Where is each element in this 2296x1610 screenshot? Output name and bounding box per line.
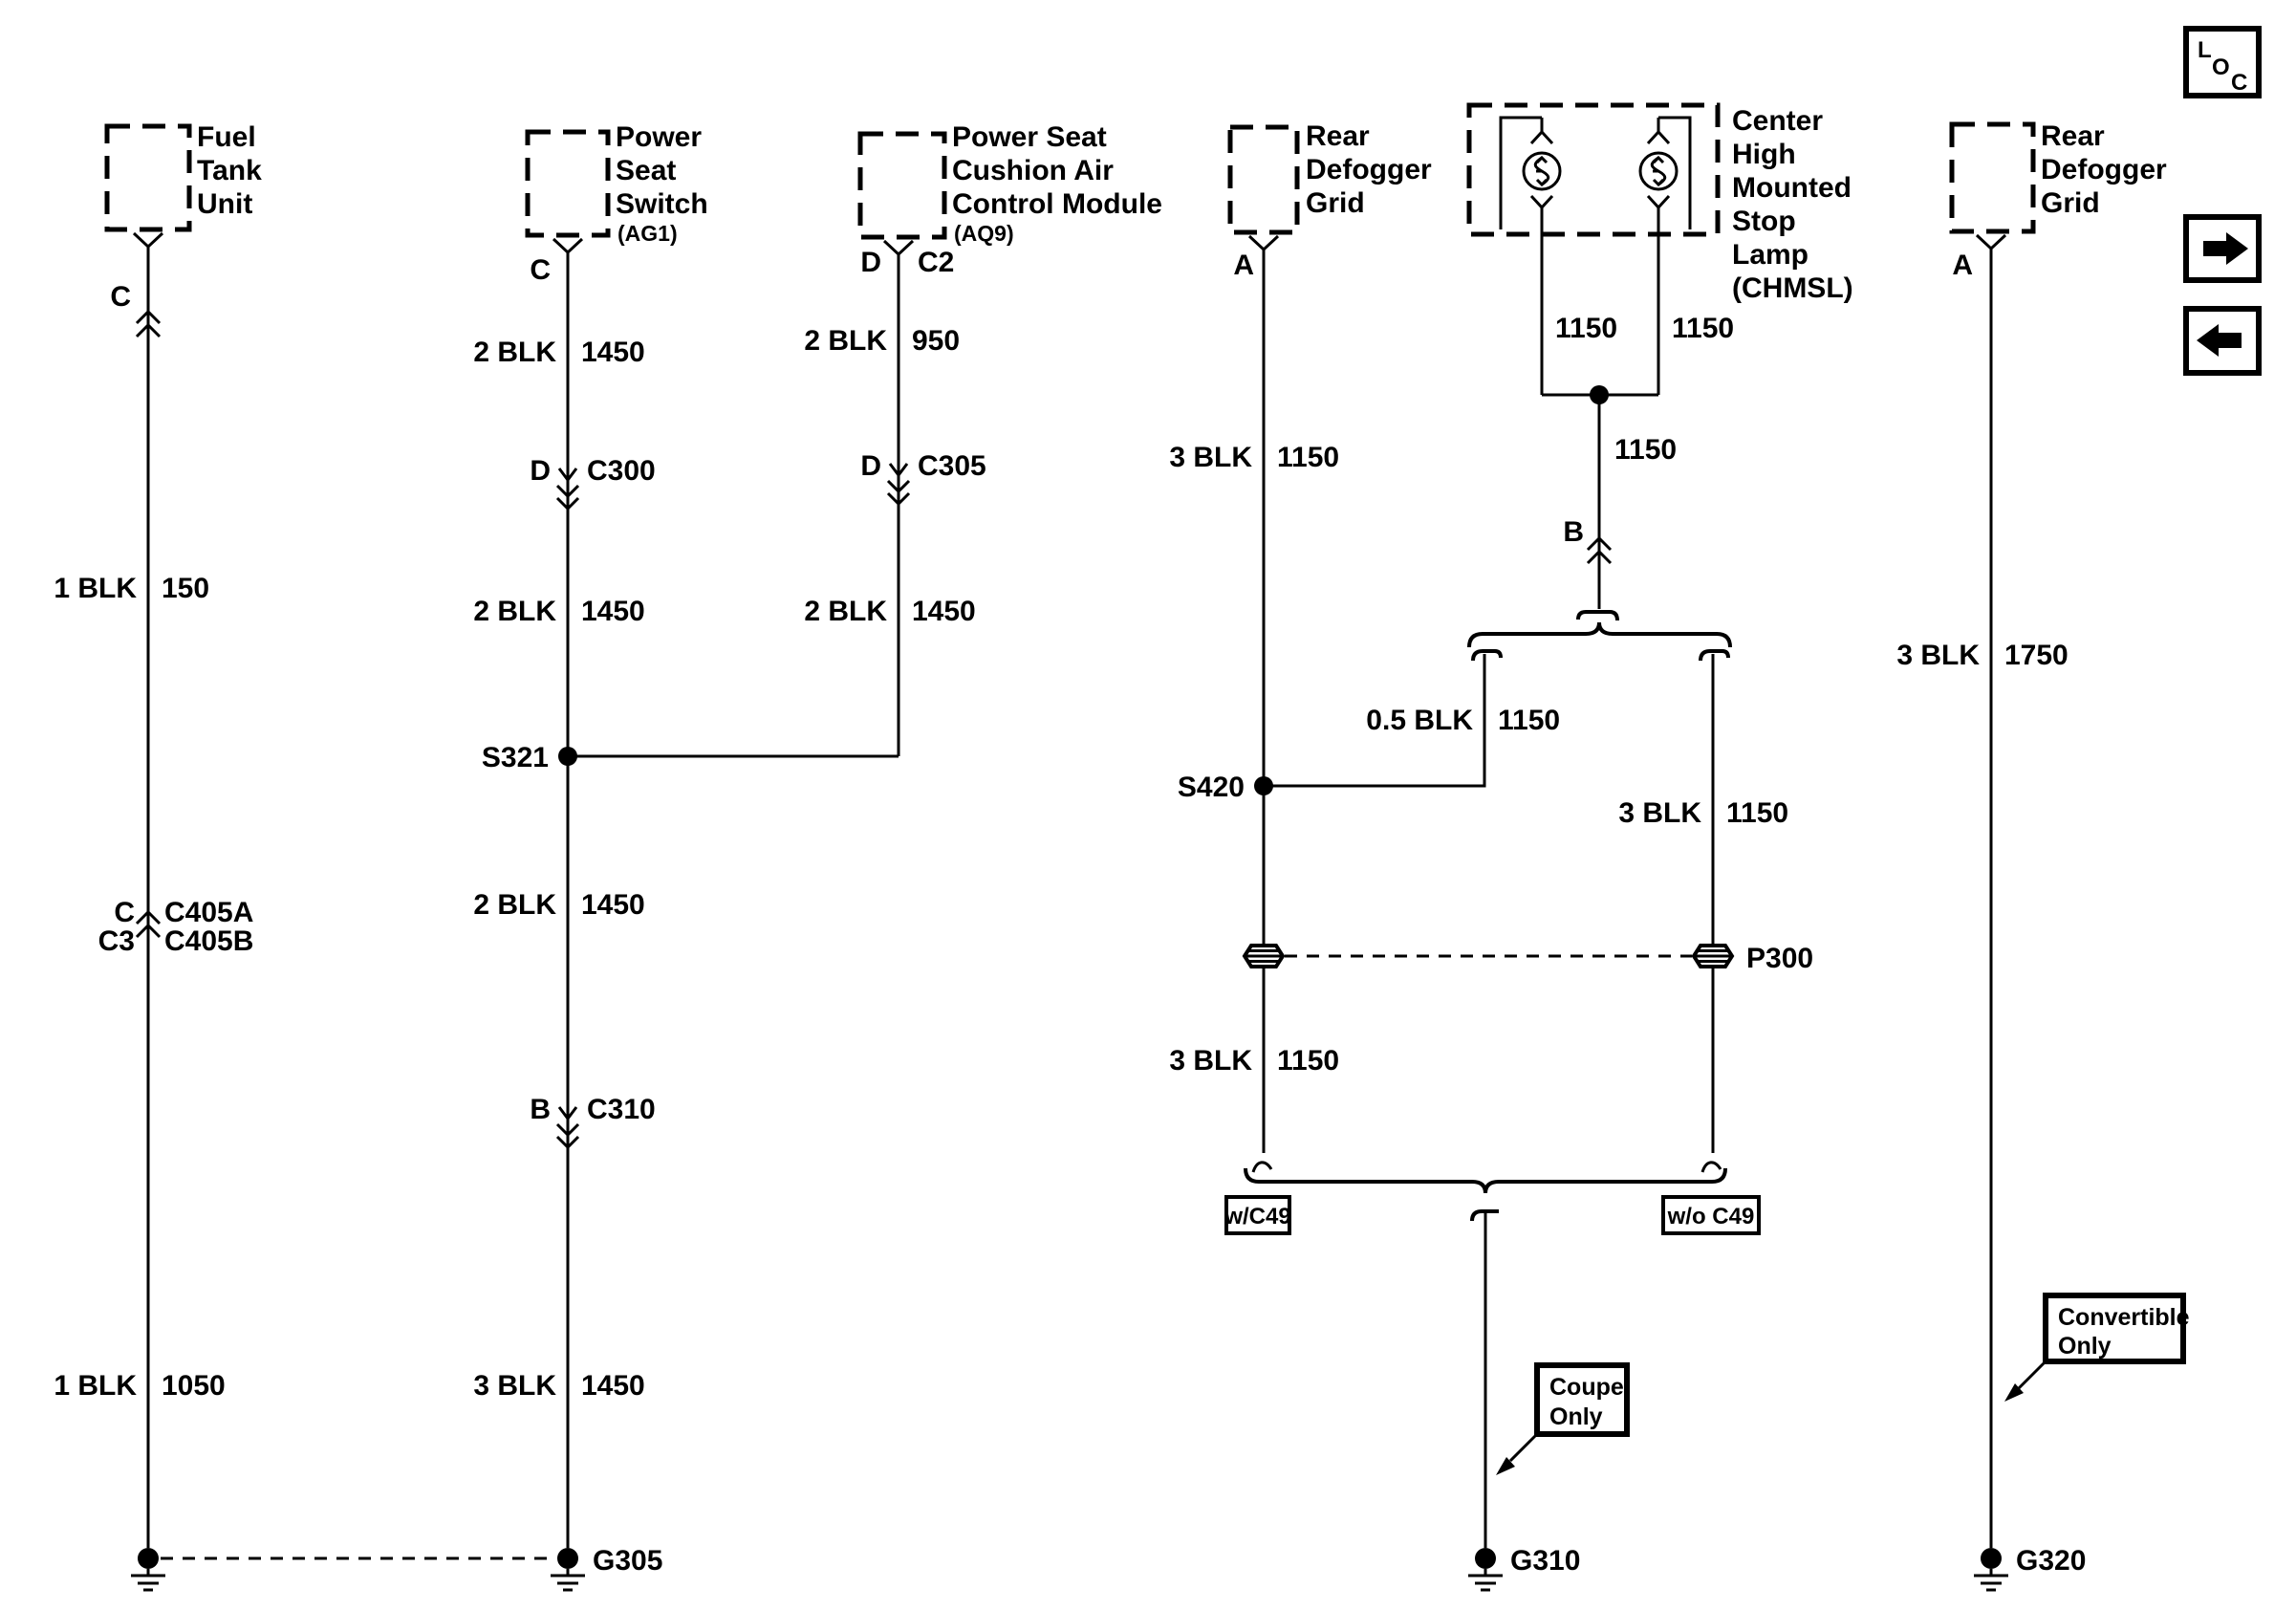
connector-id: C305 [918, 450, 986, 482]
connector-c405: C C405A C3 C405B [98, 897, 254, 957]
wire-gauge-label: 2 BLK [804, 596, 887, 627]
wire-end-curl [1702, 1163, 1721, 1172]
lamp-right-circuit-label: 1150 [1672, 313, 1734, 344]
chmsl-name-line3: Mounted [1732, 172, 1852, 204]
fuel-tank-name-line2: Tank [197, 155, 262, 186]
p300-label: P300 [1746, 943, 1813, 974]
wire-gauge-label: 3 BLK [1169, 442, 1252, 473]
cushion-module-conn-top: C2 [918, 247, 954, 278]
cushion-module-name-line1: Power Seat [952, 121, 1107, 153]
wire-circuit-label: 1450 [581, 596, 645, 627]
defogger-left-name-line2: Defogger [1306, 154, 1432, 185]
fuel-tank-unit-box [107, 126, 189, 229]
connector-id-top: C405A [164, 897, 253, 928]
cushion-module-name-line2: Cushion Air [952, 155, 1114, 186]
loc-button[interactable]: L O C [2186, 29, 2259, 96]
option-right-label: w/o C49 [1667, 1204, 1755, 1229]
wire-gauge-label: 1 BLK [54, 1370, 137, 1402]
wiring-diagram-page: Fuel Tank Unit C 1 BLK 150 C C405A C3 C4… [0, 0, 2296, 1610]
chmsl-left-bracket [1501, 118, 1542, 229]
connector-pin-top: C [114, 897, 135, 928]
connector-pin-bottom: C3 [98, 925, 135, 957]
wire-circuit-label: 1450 [912, 596, 976, 627]
chmsl-component: Center High Mounted Stop Lamp (CHMSL) [1469, 105, 1853, 395]
connector-id: C300 [587, 455, 656, 487]
chmsl-name-line1: Center [1732, 105, 1823, 137]
wire-circuit-label: 1150 [1277, 442, 1339, 473]
cushion-module-pin-label: D [860, 247, 881, 278]
rear-defogger-right-box [1952, 124, 2033, 231]
wire-circuit-label: 1450 [581, 1370, 645, 1402]
chmsl-name-line6: (CHMSL) [1732, 272, 1853, 304]
convertible-note-line2: Only [2058, 1333, 2112, 1360]
power-seat-switch-box [528, 132, 608, 235]
wire-gauge-label: 2 BLK [804, 325, 887, 357]
defogger-right-name-line2: Defogger [2041, 154, 2167, 185]
wire-circuit-label: 1150 [1277, 1045, 1339, 1077]
nav-forward-button[interactable] [2186, 217, 2259, 280]
defogger-right-pin-label: A [1952, 250, 1973, 281]
seat-switch-name-line2: Seat [616, 155, 676, 186]
seat-switch-wire: C 2 BLK 1450 D C300 2 BLK 1450 S321 2 BL… [473, 239, 899, 1590]
ground-symbol-icon [1974, 1548, 2008, 1590]
ground-symbol-icon [131, 1548, 165, 1590]
ground-label-g310: G310 [1510, 1545, 1580, 1577]
splice-s321: S321 [482, 742, 577, 773]
option-left-label: w/C49 [1224, 1204, 1290, 1229]
defogger-left-name-line3: Grid [1306, 187, 1365, 219]
option-label-wc49: w/C49 [1224, 1197, 1290, 1233]
fuel-tank-name-line3: Unit [197, 188, 252, 220]
seat-switch-name-line1: Power [616, 121, 702, 153]
lamp-left-circuit-label: 1150 [1555, 313, 1617, 344]
stop-lamp-left-icon [1524, 118, 1560, 395]
coupe-note-line1: Coupe [1549, 1374, 1624, 1401]
convertible-only-note: Convertible Only [2004, 1295, 2190, 1402]
defogger-right-name-line1: Rear [2041, 120, 2105, 152]
splice-s420: S420 [1178, 772, 1273, 803]
cushion-module-sub-label: (AQ9) [954, 221, 1014, 246]
wire-end-curl [1253, 1163, 1271, 1172]
defogger-left-name-line1: Rear [1306, 120, 1370, 152]
wire-circuit-label: 950 [912, 325, 960, 357]
ground-label-g305: G305 [593, 1545, 662, 1577]
wire-gauge-label: 2 BLK [473, 889, 556, 921]
defogger-right-wire: A 3 BLK 1750 Convertible Only G320 [1896, 235, 2189, 1590]
chmsl-name-line4: Stop [1732, 206, 1796, 237]
ground-symbol-icon [1468, 1548, 1503, 1590]
branch-left-bracket [1473, 651, 1501, 661]
wire-gauge-label: 3 BLK [473, 1370, 556, 1402]
option-label-wo-c49: w/o C49 [1663, 1197, 1759, 1233]
loc-letter-o: O [2212, 54, 2230, 80]
wire-gauge-label: 0.5 BLK [1366, 705, 1473, 736]
pass-through-connector-icon [1245, 946, 1283, 967]
nav-back-button[interactable] [2186, 309, 2259, 373]
wire-gauge-label: 1 BLK [54, 573, 137, 604]
wire-circuit-label: 1450 [581, 337, 645, 368]
splice-label: S420 [1178, 772, 1245, 803]
connector-c300: D C300 [530, 455, 655, 509]
chmsl-pin-label: B [1563, 516, 1584, 548]
pass-through-connector-icon [1694, 946, 1732, 967]
chmsl-wires: 1150 1150 1150 B 0.5 BLK 1150 3 BLK 1150… [1224, 313, 1813, 1590]
connector-c310: B C310 [530, 1094, 655, 1147]
rear-defogger-grid-right-component: Rear Defogger Grid [1952, 120, 2167, 231]
connector-pin: D [860, 450, 881, 482]
wire-circuit-label: 1750 [2004, 640, 2069, 671]
wire-circuit-label: 1450 [581, 889, 645, 921]
seat-switch-pin-label: C [530, 254, 551, 286]
wire-gauge-label: 2 BLK [473, 596, 556, 627]
wire-circuit-label: 1050 [162, 1370, 226, 1402]
rear-defogger-left-box [1230, 127, 1297, 232]
loc-letter-l: L [2198, 37, 2212, 63]
wire-end-tick [1578, 612, 1617, 620]
connector-c305: D C305 [860, 450, 986, 504]
seat-switch-sub-label: (AG1) [617, 221, 678, 246]
joined-circuit-label: 1150 [1614, 434, 1677, 466]
wire-gauge-label: 2 BLK [473, 337, 556, 368]
option-merge-brace [1245, 1168, 1725, 1193]
wire-gauge-label: 3 BLK [1896, 640, 1980, 671]
power-seat-switch-component: Power Seat Switch (AG1) [528, 121, 708, 246]
wire-circuit-label: 1150 [1498, 705, 1560, 736]
chmsl-name-line2: High [1732, 139, 1796, 170]
wire-circuit-label: 1150 [1726, 797, 1788, 829]
wire-gauge-label: 3 BLK [1169, 1045, 1252, 1077]
ground-symbol-icon [551, 1548, 585, 1590]
wiring-diagram: Fuel Tank Unit C 1 BLK 150 C C405A C3 C4… [0, 0, 2296, 1610]
wire-gauge-label: 3 BLK [1618, 797, 1701, 829]
coupe-only-note: Coupe Only [1496, 1365, 1627, 1475]
connector-id-bottom: C405B [164, 925, 253, 957]
splice-label: S321 [482, 742, 549, 773]
defogger-left-pin-label: A [1233, 250, 1254, 281]
seat-switch-name-line3: Switch [616, 188, 708, 220]
option-split-brace [1469, 622, 1730, 647]
chmsl-name-line5: Lamp [1732, 239, 1809, 271]
wire-circuit-label: 150 [162, 573, 209, 604]
defogger-right-name-line3: Grid [2041, 187, 2100, 219]
coupe-note-line2: Only [1549, 1403, 1603, 1430]
connector-pin: D [530, 455, 551, 487]
loc-letter-c: C [2231, 70, 2247, 96]
cushion-module-wire: D C2 2 BLK 950 D C305 2 BLK 1450 [804, 241, 986, 756]
stop-lamp-right-icon [1640, 118, 1677, 395]
rear-defogger-grid-left-component: Rear Defogger Grid [1230, 120, 1432, 232]
cushion-module-name-line3: Control Module [952, 188, 1162, 220]
fuel-tank-unit-component: Fuel Tank Unit [107, 121, 262, 229]
cushion-air-module-box [860, 134, 944, 237]
connector-pin: B [530, 1094, 551, 1125]
cushion-air-module-component: Power Seat Cushion Air Control Module (A… [860, 121, 1162, 246]
convertible-note-line1: Convertible [2058, 1304, 2190, 1331]
fuel-tank-name-line1: Fuel [197, 121, 256, 153]
connector-id: C310 [587, 1094, 656, 1125]
chmsl-box [1469, 105, 1718, 234]
ground-label-g320: G320 [2016, 1545, 2086, 1577]
fuel-tank-pin-label: C [110, 281, 131, 313]
